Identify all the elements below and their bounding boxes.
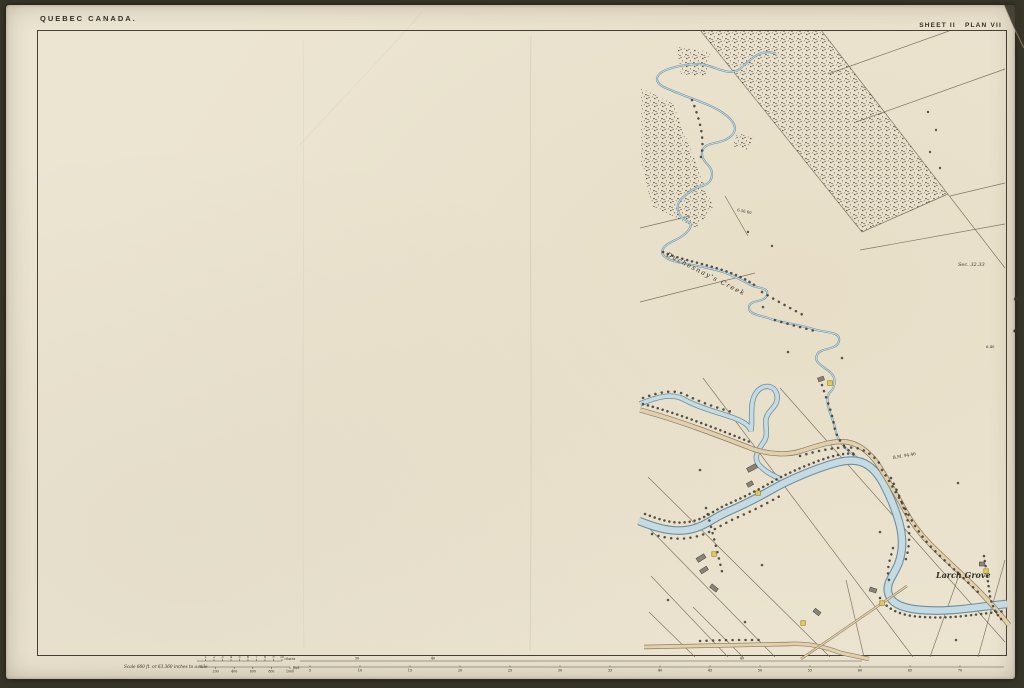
main-road-surface xyxy=(640,410,1009,625)
feet-tick-label: 600 xyxy=(250,669,256,673)
chain-unit-label: chains xyxy=(285,657,296,661)
scan-damage xyxy=(1004,5,1024,333)
station-number: 20 xyxy=(458,669,463,673)
diagonal-crease xyxy=(300,12,422,145)
creek-name-label: Duchesnay's Creek xyxy=(664,250,747,297)
buildings xyxy=(696,376,988,625)
chain-tick-label: 2 xyxy=(213,655,215,659)
station-number: 60 xyxy=(858,669,863,673)
chain-tick-label: 10 xyxy=(280,655,284,659)
station-number: 10 xyxy=(358,669,363,673)
chain-tick-label: 3 xyxy=(221,655,223,659)
feet-tick-label: 400 xyxy=(231,669,237,673)
sheet-plan-title: SHEET II PLAN VII xyxy=(919,22,1002,29)
chain-tick-label: 9 xyxy=(272,655,274,659)
side-road-surface xyxy=(801,586,907,659)
station-number: 40 xyxy=(658,669,663,673)
larch-grove-label: Larch Grove xyxy=(935,570,991,580)
station-number: 5 xyxy=(309,669,312,673)
station-baseline: 510152025303540455055606570304040 xyxy=(293,656,1004,672)
edge-notch xyxy=(1014,297,1018,301)
feet-ruler: 2004006008001000feet xyxy=(197,666,300,673)
feet-tick-label: 200 xyxy=(213,669,219,673)
river-path xyxy=(639,461,1007,611)
chain-tick-label: 5 xyxy=(238,655,240,659)
forest-patch xyxy=(677,47,710,77)
station-number: 30 xyxy=(558,669,563,673)
scrub-patch xyxy=(733,133,753,152)
station-number: 35 xyxy=(608,669,613,673)
upper-station-mark: 40 xyxy=(431,656,436,660)
wooded-areas xyxy=(641,30,948,232)
edge-notch xyxy=(1013,329,1016,332)
station-number: 50 xyxy=(758,669,763,673)
station-number: 65 xyxy=(908,669,913,673)
station-number: 55 xyxy=(808,669,813,673)
upper-station-mark: 30 xyxy=(355,656,360,660)
map-scan: QUEBEC CANADA. SHEET II PLAN VII Duchesn… xyxy=(0,0,1024,688)
scale-bar: Scale 660 ft. or 63.360 inches to a mile… xyxy=(124,655,300,674)
forest-band xyxy=(700,30,948,232)
chain-tick-label: 6 xyxy=(247,655,249,659)
river-highlight xyxy=(639,461,1007,611)
vertical-crease xyxy=(303,40,304,648)
chain-tick-label: 1 xyxy=(204,655,206,659)
feet-tick-label: 800 xyxy=(268,669,274,673)
paper-creases xyxy=(300,12,531,650)
feet-unit-label: feet xyxy=(292,666,300,670)
station-number: 45 xyxy=(708,669,713,673)
region-title: QUEBEC CANADA. xyxy=(40,14,137,23)
vertical-crease xyxy=(530,36,531,650)
elevation-label: 6.56.60 xyxy=(737,207,753,215)
scale-caption: Scale 660 ft. or 63.360 inches to a mile xyxy=(124,664,208,669)
roads xyxy=(640,410,1009,659)
chain-tick-label: 4 xyxy=(230,655,232,659)
chain-tick-label: 7 xyxy=(255,655,257,659)
elevation-label: 6.40 xyxy=(986,344,995,349)
benchmark-label: B.M. 94.46 xyxy=(892,451,916,460)
station-number: 25 xyxy=(508,669,513,673)
chain-tick-label: 8 xyxy=(264,655,266,659)
station-number: 70 xyxy=(958,669,963,673)
section-label: Sec. 32.33 xyxy=(958,262,985,268)
station-number: 15 xyxy=(408,669,413,673)
bottom-road-surface xyxy=(644,644,869,659)
upper-station-mark: 40 xyxy=(740,656,745,660)
